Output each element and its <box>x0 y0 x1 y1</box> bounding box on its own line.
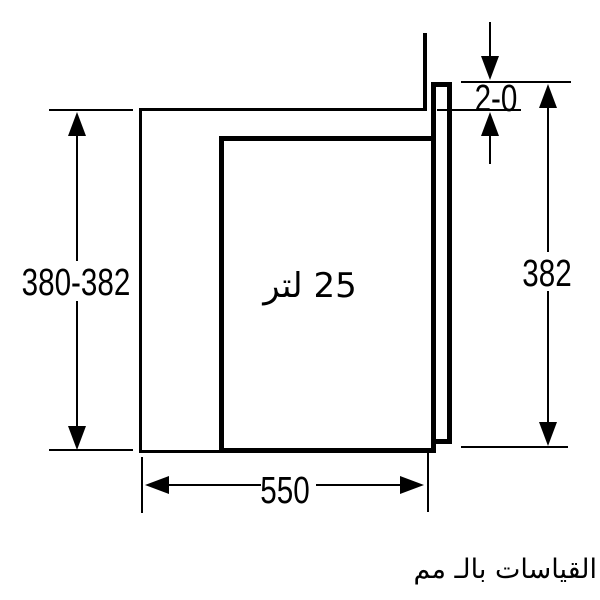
depth-ext-line-right <box>427 453 429 512</box>
arrow-up-icon <box>481 112 499 136</box>
installation-diagram: 25 لتر 380-382 2-0 382 550 القياسات بالـ… <box>0 0 600 600</box>
depth-shaft-right <box>316 484 402 486</box>
units-note: القياسات بالـ مم <box>413 553 597 587</box>
arrow-up-icon <box>539 84 557 108</box>
door-height-shaft-lower <box>547 291 549 423</box>
appliance-door-outline <box>431 82 452 444</box>
niche-height-tick-bottom <box>49 449 133 451</box>
niche-height-label: 380-382 <box>17 264 136 302</box>
door-height-ref-bottom <box>461 446 568 448</box>
arrow-up-icon <box>68 112 86 136</box>
arrow-down-icon <box>481 56 499 80</box>
top-gap-shaft-lower <box>489 134 491 164</box>
depth-label: 550 <box>226 472 345 510</box>
arrow-down-icon <box>539 422 557 446</box>
capacity-label: 25 لتر <box>235 267 385 305</box>
niche-height-tick-top <box>49 109 133 111</box>
niche-left-line <box>139 108 142 453</box>
arrow-down-icon <box>68 426 86 450</box>
arrow-right-icon <box>400 476 424 494</box>
door-height-shaft-upper <box>547 106 549 252</box>
arrow-left-icon <box>145 476 169 494</box>
top-gap-shaft-upper <box>489 22 491 57</box>
door-height-label: 382 <box>488 255 600 293</box>
depth-ext-line-left <box>141 457 143 513</box>
niche-height-shaft-lower <box>76 301 78 427</box>
cabinet-front-wall-line <box>423 33 427 111</box>
door-height-ref-top <box>461 81 571 83</box>
niche-top-line <box>139 108 427 111</box>
niche-height-shaft-upper <box>76 134 78 261</box>
top-gap-ref-line <box>437 109 521 111</box>
